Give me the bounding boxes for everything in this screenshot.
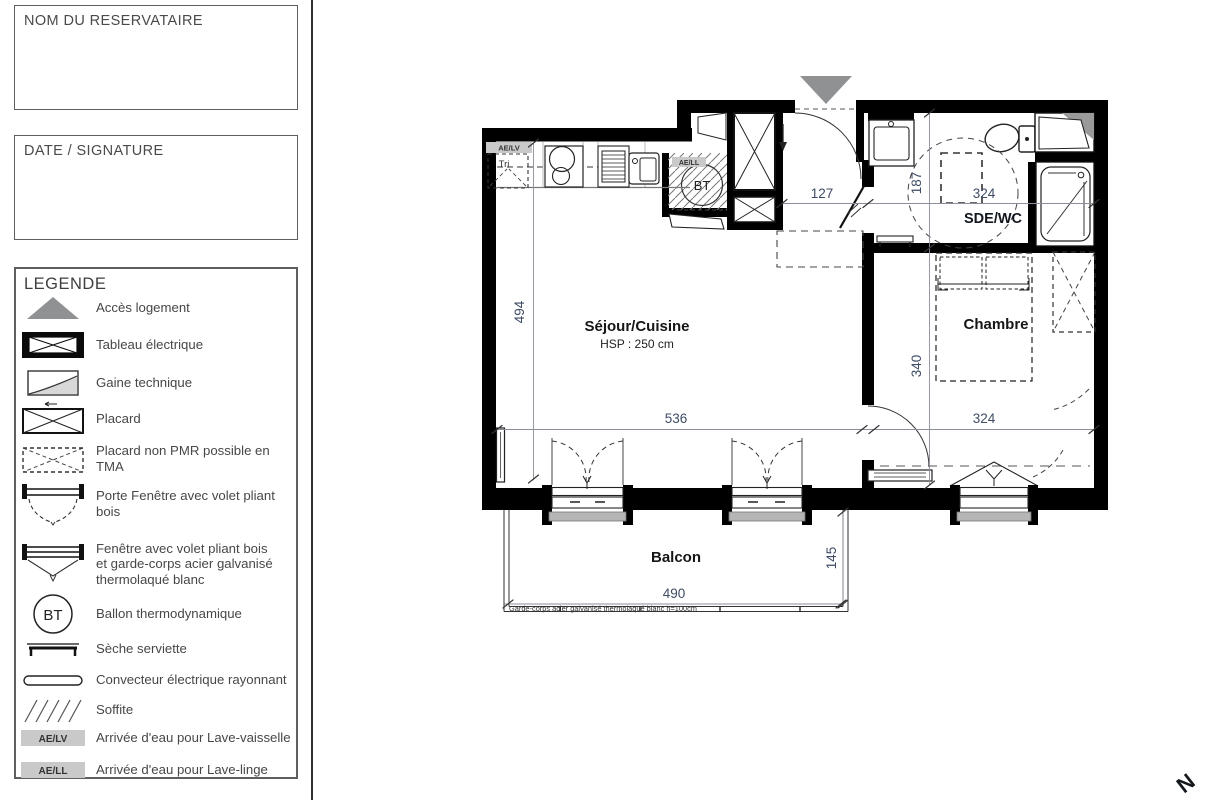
guardrail-note: Garde-corps acier galvanisé thermolaqué … (509, 604, 697, 613)
pmr-circle (908, 138, 1018, 248)
dim-sejour-height: 494 (512, 300, 527, 323)
soffit-outline (777, 231, 863, 267)
cooktop (545, 146, 583, 187)
room-label-sde: SDE/WC (964, 211, 1023, 227)
dim-chambre-width: 324 (973, 411, 996, 426)
north-indicator: N (1172, 768, 1200, 797)
bedroom-door-arc (868, 406, 929, 467)
shower (1036, 162, 1094, 246)
bedroom (868, 252, 1095, 486)
living-room (497, 428, 505, 482)
dim-sde-height: 187 (909, 172, 924, 195)
bt-plan-label: BT (694, 178, 711, 193)
bathroom (869, 113, 1094, 248)
dim-sde-width: 324 (973, 186, 996, 201)
dim-balcon-depth: 145 (824, 547, 839, 570)
closet-leaf-top (698, 113, 726, 140)
bathroom-door (840, 186, 864, 228)
dim-balcon-width: 490 (663, 586, 686, 601)
dim-chambre-height: 340 (909, 355, 924, 378)
tri-label: Tri (499, 159, 510, 170)
bedroom-convector (868, 470, 932, 481)
room-label-sejour: Séjour/Cuisine (584, 318, 689, 335)
towel-dryer (877, 236, 913, 242)
room-label-chambre: Chambre (963, 316, 1028, 333)
room-label-balcon: Balcon (651, 549, 701, 566)
dim-sejour-width: 536 (665, 411, 688, 426)
kitchen: AE/LV Tri (486, 142, 690, 188)
ae-lv-plan-label: AE/LV (498, 144, 520, 153)
toilet (982, 121, 1022, 155)
ae-ll-plan-label: AE/LL (679, 160, 700, 167)
floorplan-drawing: AE/LL BT AE/LV Tri (0, 0, 1224, 800)
room-hsp-sejour: HSP : 250 cm (600, 337, 674, 351)
floorplan-sheet: NOM DU RESERVATAIRE DATE / SIGNATURE LEG… (0, 0, 1224, 800)
windows (542, 438, 1038, 525)
entry-door-arc (795, 113, 861, 179)
appliance (598, 146, 629, 187)
dim-entry-width: 127 (811, 186, 834, 201)
access-triangle (800, 76, 852, 104)
